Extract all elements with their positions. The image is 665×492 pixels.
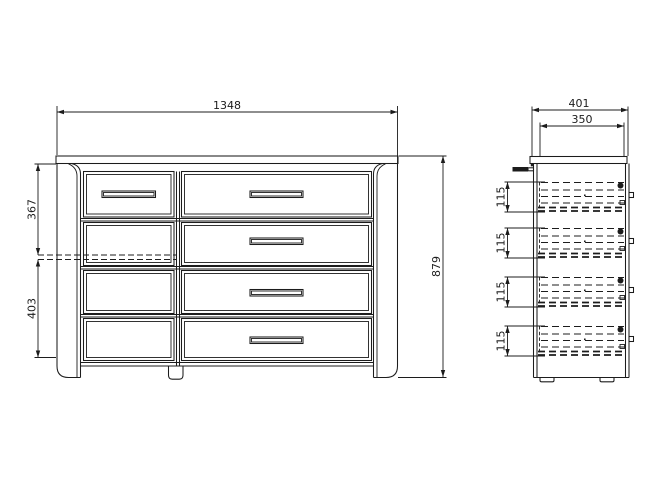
side-top-panel — [530, 157, 627, 164]
dim-label-lower: 403 — [26, 298, 39, 319]
right-panel-inner-edge — [374, 164, 383, 378]
side-drawer-box-3 — [537, 277, 634, 306]
runner-block — [620, 201, 625, 205]
drawer-front-right-2 — [182, 223, 372, 266]
hidden-shelf-lines — [38, 255, 177, 260]
technical-drawing-canvas: 1348 879 367 403 401 — [0, 0, 665, 492]
drawer-handle — [102, 191, 156, 198]
side-drawer-box-4 — [537, 326, 634, 355]
side-feet — [540, 378, 614, 382]
left-panel-detail-line — [69, 164, 78, 378]
drawer-front-right-3 — [182, 271, 372, 314]
front-right-side-panel — [374, 164, 398, 378]
side-drawer-box-1 — [537, 182, 634, 211]
back-clip — [629, 193, 634, 198]
drawer-handle — [250, 337, 303, 344]
dim-label-height: 879 — [430, 256, 443, 277]
drawer-handle — [250, 191, 303, 198]
drawer-front-right-4 — [182, 319, 372, 361]
side-drawer-box-2 — [537, 228, 634, 257]
dimensions: 1348 879 367 403 401 — [26, 97, 629, 378]
drawer-front-left-1 — [84, 172, 175, 218]
front-rails — [81, 219, 374, 367]
drawer-handle — [250, 290, 303, 297]
cam-fitting-dot — [618, 327, 624, 333]
dim-drawer-depth: 350 — [540, 113, 624, 156]
front-view — [38, 156, 398, 379]
drawing-svg: 1348 879 367 403 401 — [0, 0, 665, 492]
drawer-front-left-4 — [84, 319, 175, 361]
left-panel-inner-edge — [72, 164, 81, 378]
drawer-front-right-1 — [182, 172, 372, 218]
dim-overall-width: 1348 — [57, 99, 398, 164]
dim-label-drawer-3: 115 — [495, 282, 508, 303]
cam-fitting-dot — [618, 278, 624, 284]
back-clip — [629, 239, 634, 244]
dim-label-drawer-2: 115 — [495, 233, 508, 254]
back-clip — [629, 337, 634, 342]
dim-label-drawer-4: 115 — [495, 331, 508, 352]
dim-overall-height: 879 — [398, 156, 447, 378]
back-clip — [629, 288, 634, 293]
dim-label-drawer-1: 115 — [495, 187, 508, 208]
cam-fitting-dot — [618, 229, 624, 235]
dim-lower-section: 403 — [26, 260, 57, 358]
runner-block — [620, 345, 625, 349]
drawer-front-left-3 — [84, 271, 175, 314]
side-front-edge — [534, 164, 538, 378]
front-top-panel — [56, 156, 398, 164]
right-panel-detail-line — [377, 164, 386, 378]
dim-label-upper: 367 — [26, 199, 39, 220]
runner-block — [620, 296, 625, 300]
runner-block — [620, 247, 625, 251]
dim-label-depth: 401 — [569, 97, 590, 110]
front-left-side-panel — [57, 164, 81, 378]
dim-label-drawer-depth: 350 — [572, 113, 593, 126]
cam-fitting-dot — [618, 183, 624, 189]
drawer-handle — [250, 238, 303, 245]
side-view — [513, 157, 634, 382]
dim-upper-section: 367 — [26, 164, 57, 255]
side-drawer-handle — [513, 167, 534, 172]
front-center-foot — [169, 366, 184, 379]
dim-label-width: 1348 — [213, 99, 241, 112]
side-back-panel — [626, 164, 630, 378]
